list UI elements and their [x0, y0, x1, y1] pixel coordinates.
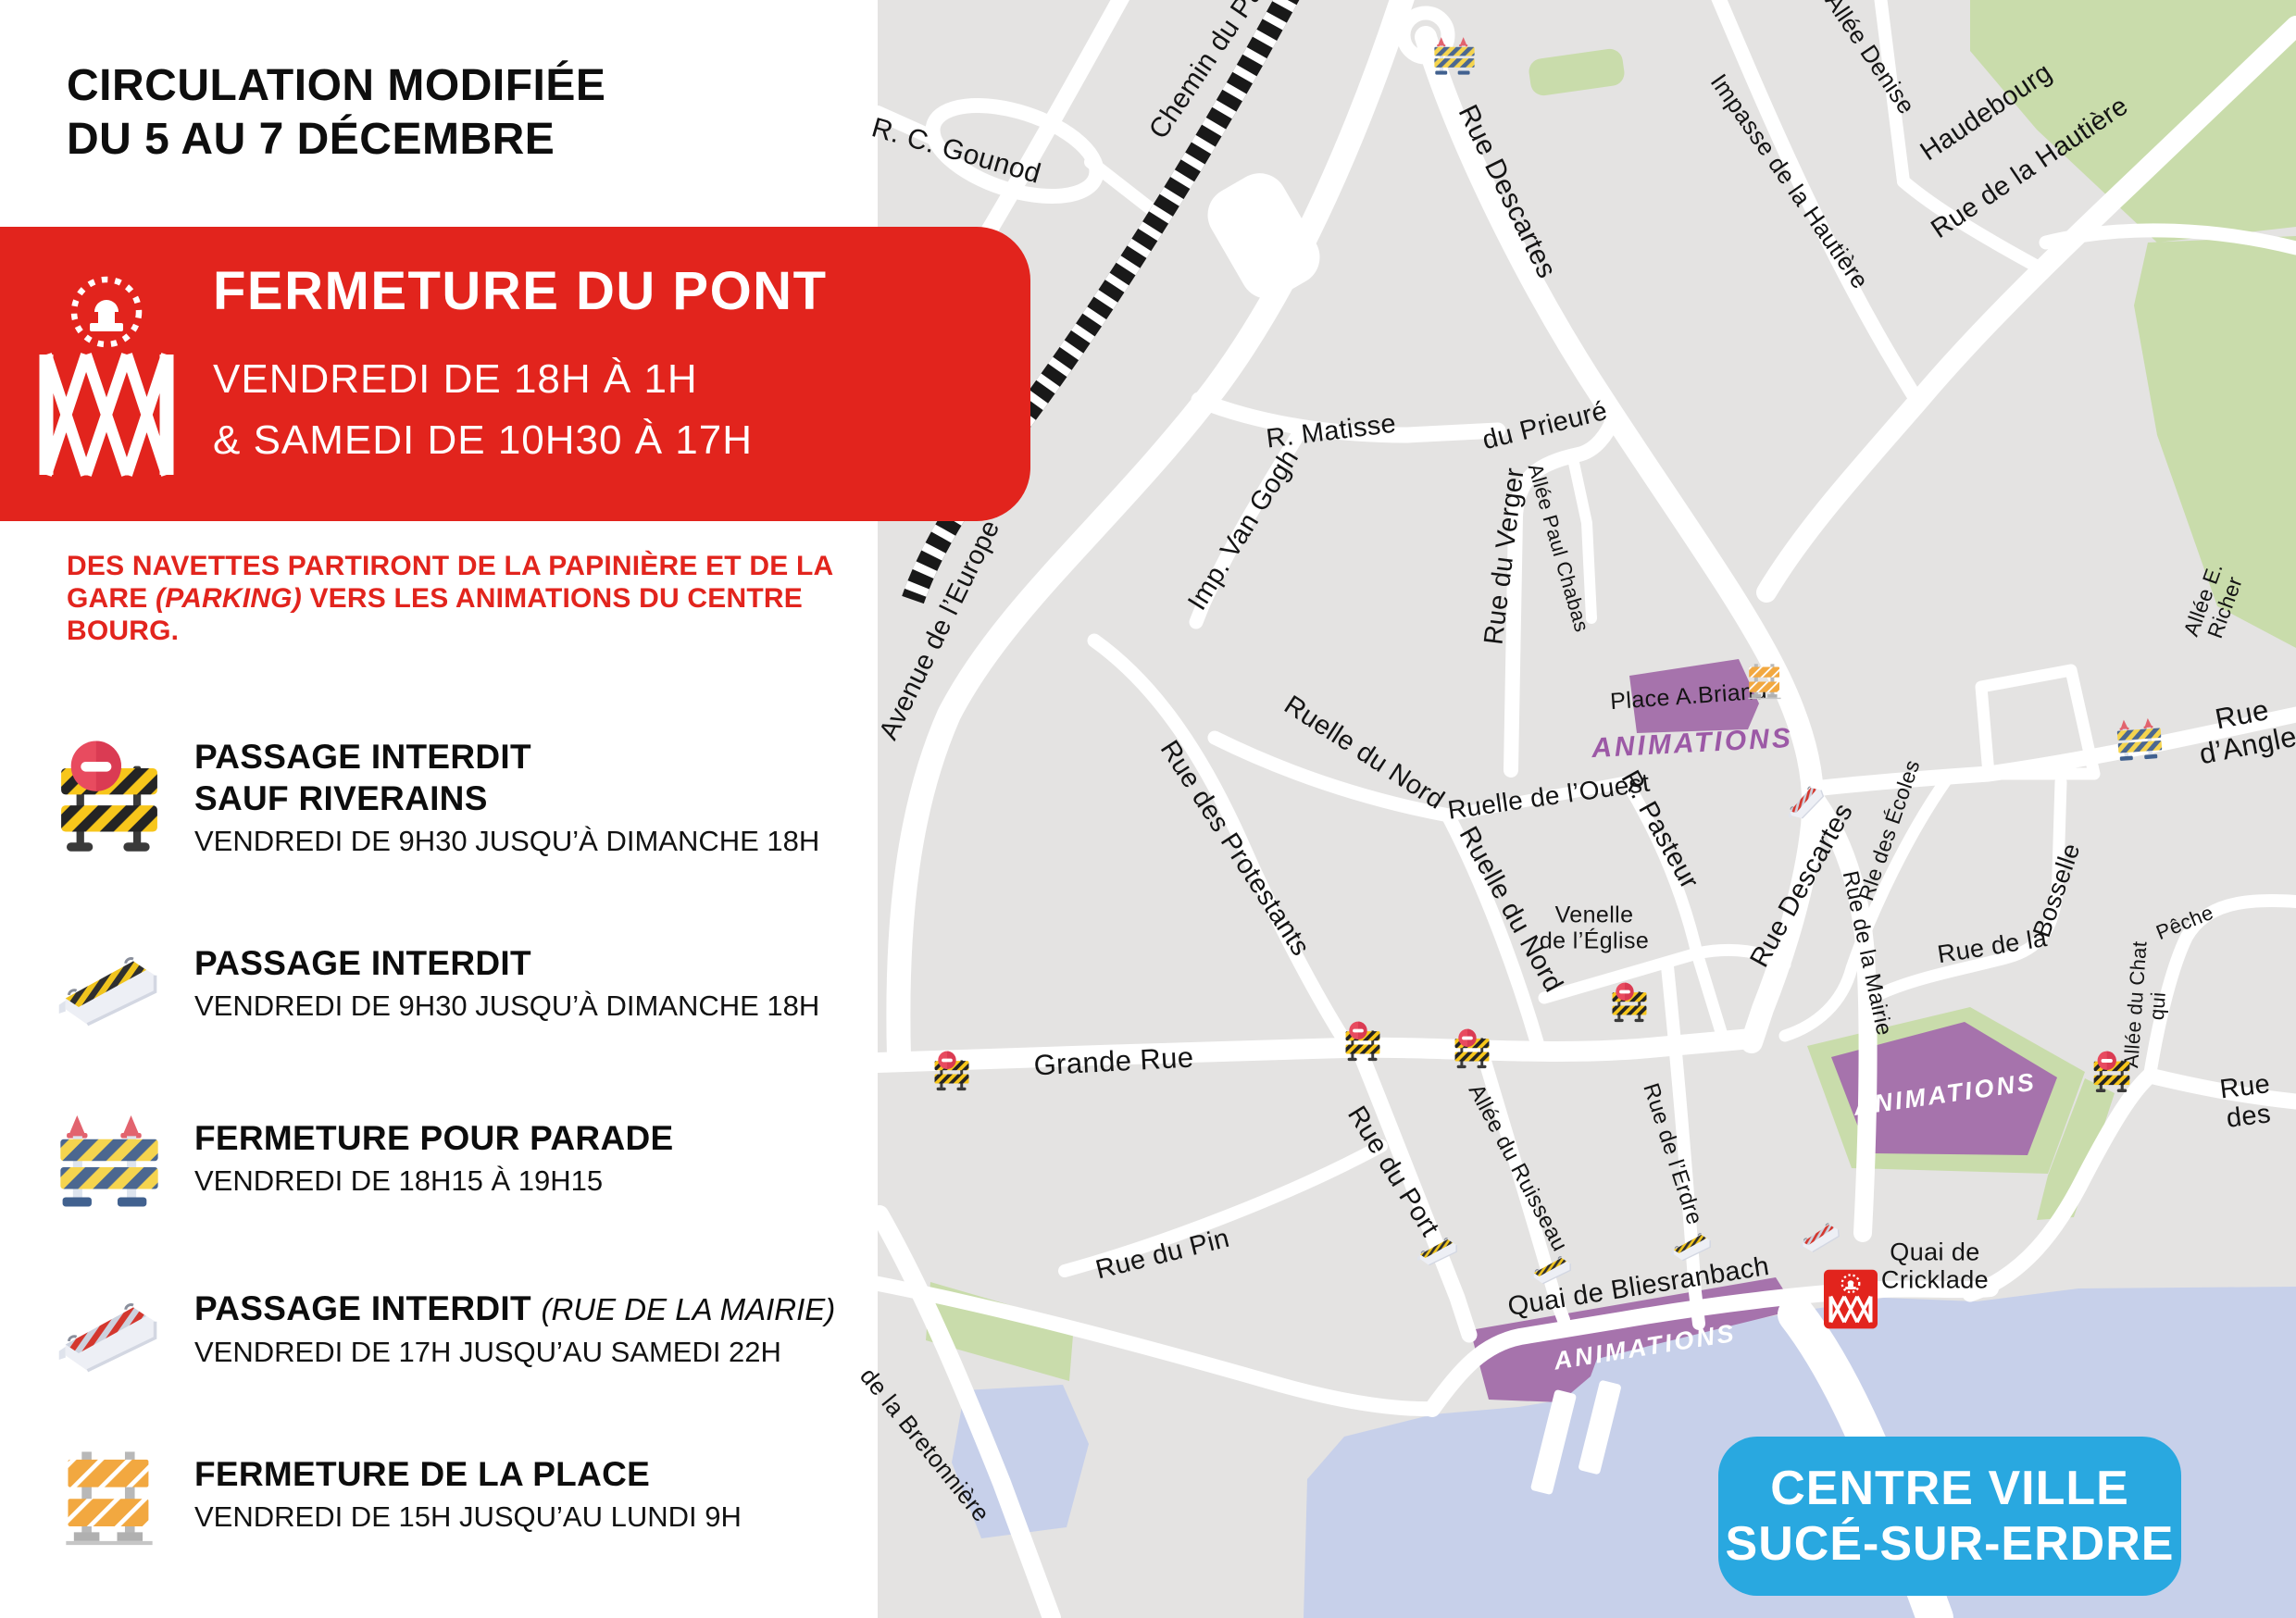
shuttle-note-line1: DES NAVETTES PARTIRONT DE LA PAPINIÈRE E…: [67, 550, 844, 582]
banner-line1: VENDREDI DE 18H À 1H: [213, 356, 698, 403]
legend-subtitle: VENDREDI DE 9H30 JUSQU’À DIMANCHE 18H: [194, 987, 852, 1024]
legend-title: PASSAGE INTERDIT: [194, 736, 852, 778]
riverains-icon: [48, 738, 170, 858]
page-title: CIRCULATION MODIFIÉE DU 5 AU 7 DÉCEMBRE: [67, 59, 605, 167]
legend-item-2: PASSAGE INTERDITVENDREDI DE 9H30 JUSQU’À…: [48, 940, 852, 1027]
shuttle-note: DES NAVETTES PARTIRONT DE LA PAPINIÈRE E…: [67, 550, 844, 647]
legend-item-5: FERMETURE DE LA PLACEVENDREDI DE 15H JUS…: [48, 1442, 852, 1546]
legend-subtitle: VENDREDI DE 9H30 JUSQU’À DIMANCHE 18H: [194, 823, 852, 860]
legend-item-4: PASSAGE INTERDIT (RUE DE LA MAIRIE)VENDR…: [48, 1286, 852, 1373]
banner-line2: & SAMEDI DE 10H30 À 17H: [213, 417, 753, 464]
legend-subtitle: VENDREDI DE 18H15 À 19H15: [194, 1164, 852, 1201]
orange-icon: [48, 1442, 170, 1546]
poster-circulation-map: { "header": { "title_line1": "CIRCULATIO…: [0, 0, 2296, 1618]
legend-item-1: PASSAGE INTERDITSAUF RIVERAINSVENDREDI D…: [48, 736, 852, 860]
badge-line1: CENTRE VILLE: [1770, 1461, 2129, 1516]
title-line1: CIRCULATION MODIFIÉE: [67, 59, 605, 113]
bridge-icon: [37, 273, 176, 484]
jersey_red-icon: [48, 1286, 170, 1373]
legend-title: PASSAGE INTERDIT (RUE DE LA MAIRIE): [194, 1288, 852, 1330]
title-line2: DU 5 AU 7 DÉCEMBRE: [67, 113, 605, 167]
banner-title: FERMETURE DU PONT: [213, 260, 828, 322]
legend-subtitle: VENDREDI DE 15H JUSQU’AU LUNDI 9H: [194, 1498, 852, 1535]
badge-line2: SUCÉ-SUR-ERDRE: [1726, 1516, 2175, 1572]
parade-icon: [48, 1104, 170, 1213]
shuttle-note-line2: GARE (PARKING) VERS LES ANIMATIONS DU CE…: [67, 582, 844, 647]
legend-title: FERMETURE POUR PARADE: [194, 1118, 852, 1160]
centre-ville-badge: CENTRE VILLE SUCÉ-SUR-ERDRE: [1718, 1437, 2181, 1596]
legend-item-3: FERMETURE POUR PARADEVENDREDI DE 18H15 À…: [48, 1104, 852, 1213]
closure-banner: FERMETURE DU PONT VENDREDI DE 18H À 1H &…: [0, 227, 1030, 521]
legend-title: PASSAGE INTERDIT: [194, 941, 852, 983]
legend-title2: SAUF RIVERAINS: [194, 778, 852, 819]
jersey_yellow-icon: [48, 940, 170, 1027]
legend-title: FERMETURE DE LA PLACE: [194, 1452, 852, 1494]
legend-subtitle: VENDREDI DE 17H JUSQU’AU SAMEDI 22H: [194, 1334, 852, 1371]
